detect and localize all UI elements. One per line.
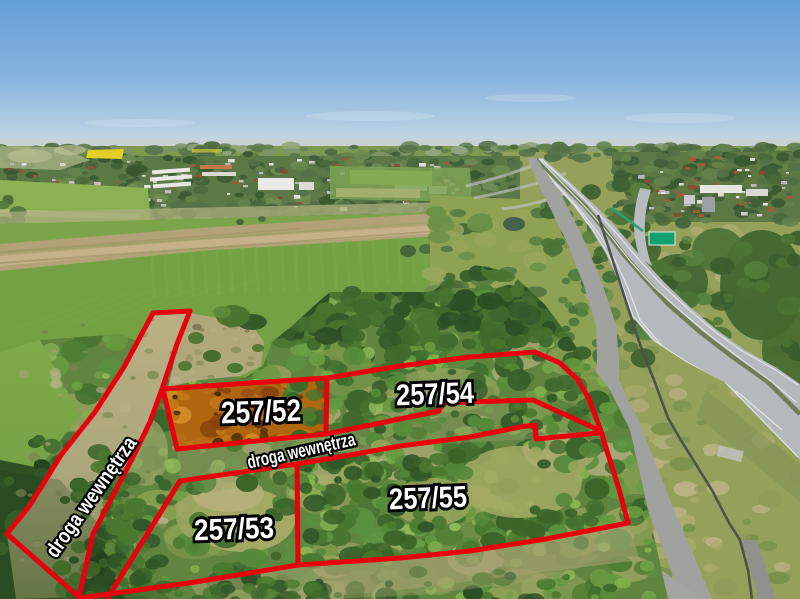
svg-text:257/54: 257/54 [396, 377, 475, 413]
svg-text:257/52: 257/52 [220, 393, 301, 431]
svg-text:257/55: 257/55 [389, 481, 468, 517]
svg-text:257/53: 257/53 [194, 512, 275, 548]
